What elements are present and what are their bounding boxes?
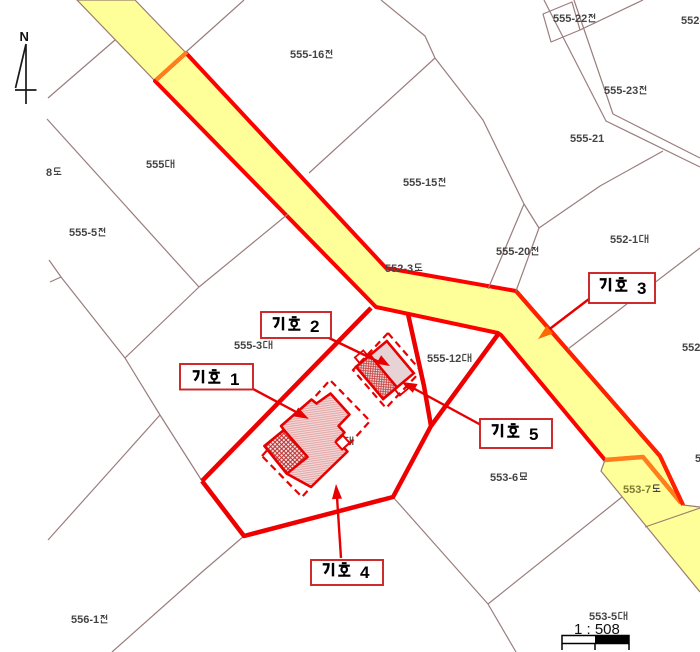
svg-text:555-21: 555-21 [570,133,604,145]
svg-text:55: 55 [695,453,700,465]
svg-text:555-22: 555-22 [553,13,587,25]
svg-text:5: 5 [529,425,538,444]
svg-text:4: 4 [360,563,370,582]
svg-text:555-16: 555-16 [290,49,324,61]
svg-text:555-15: 555-15 [403,177,437,189]
svg-text:555: 555 [146,159,164,171]
svg-text:3: 3 [637,279,646,298]
svg-text:555-23: 555-23 [604,85,638,97]
svg-text:553-6: 553-6 [490,472,518,484]
svg-text:556-1: 556-1 [71,614,99,626]
svg-text:555-3: 555-3 [234,340,262,352]
svg-text:552-3: 552-3 [385,263,413,275]
svg-text:552-1: 552-1 [682,342,700,354]
svg-text:552-2: 552-2 [681,15,700,27]
svg-text:N: N [20,29,29,44]
svg-text:2: 2 [310,317,319,336]
svg-text:555-20: 555-20 [496,246,530,258]
svg-text:8: 8 [46,167,52,179]
svg-text:1: 1 [230,370,239,389]
svg-text:555-12: 555-12 [427,353,461,365]
svg-text:552-1: 552-1 [610,234,638,246]
svg-text:553-7: 553-7 [623,484,651,496]
svg-text:555-5: 555-5 [69,227,97,239]
